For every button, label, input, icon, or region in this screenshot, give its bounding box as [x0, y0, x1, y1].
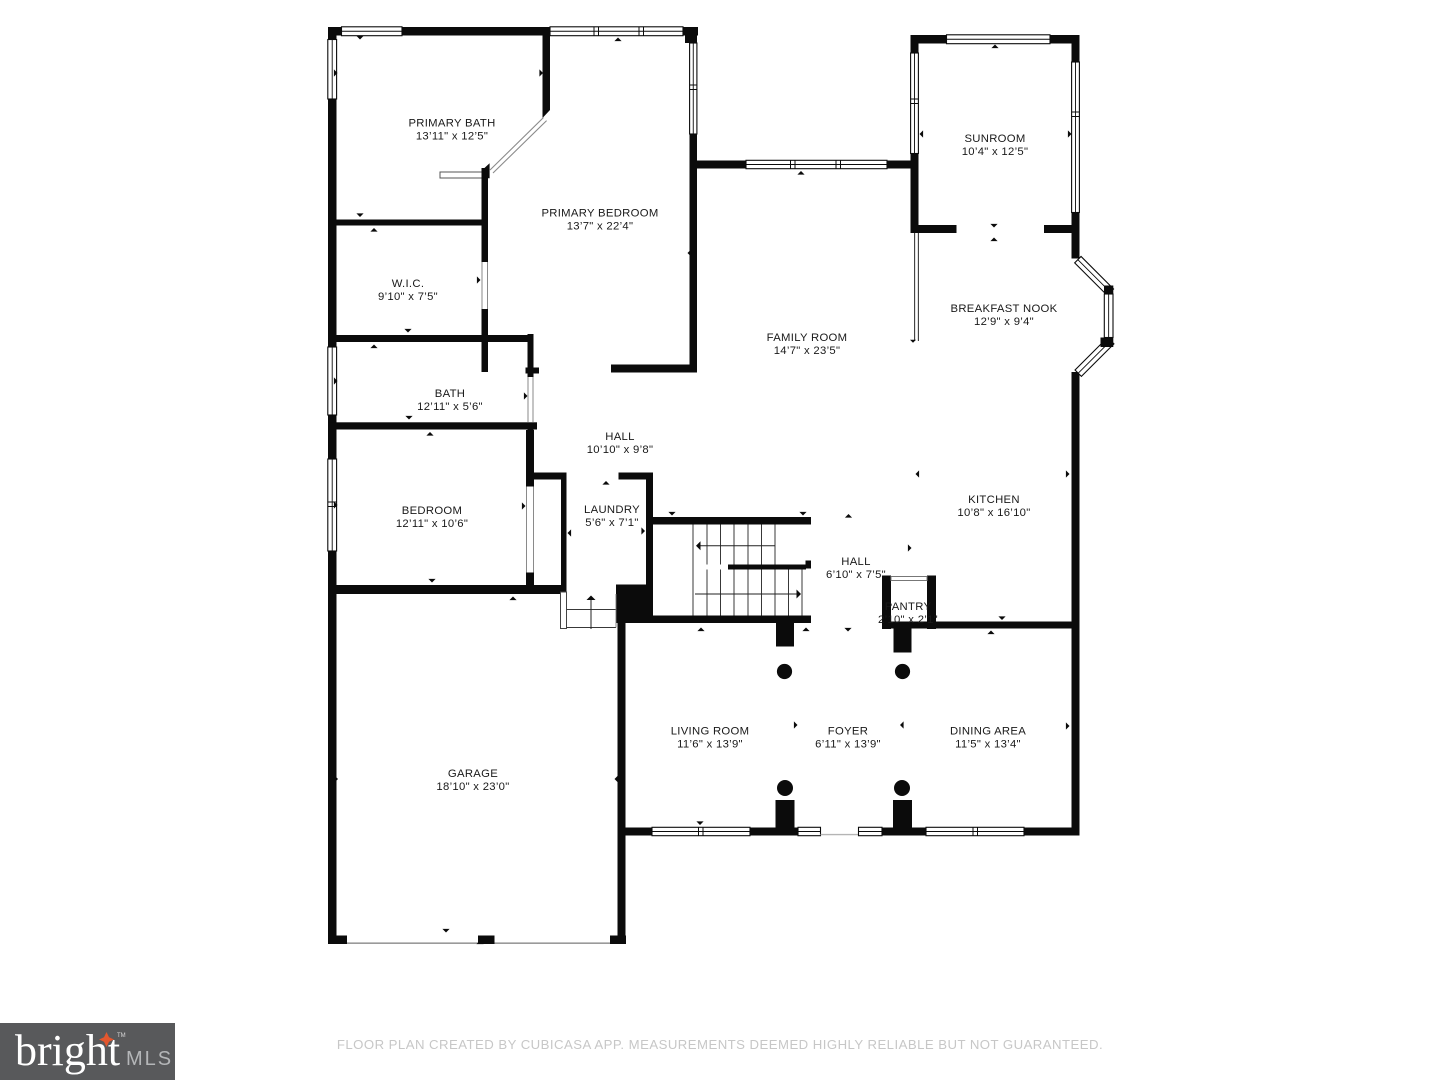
svg-text:6’10" x 7’5": 6’10" x 7’5" — [826, 569, 886, 581]
svg-text:MLS: MLS — [126, 1048, 173, 1070]
svg-text:12’11" x 10’6": 12’11" x 10’6" — [396, 518, 468, 530]
svg-text:TM: TM — [117, 1033, 126, 1039]
svg-text:14’7" x 23’5": 14’7" x 23’5" — [774, 345, 841, 357]
svg-text:HALL: HALL — [841, 556, 870, 568]
svg-text:13’7" x 22’4": 13’7" x 22’4" — [567, 221, 634, 233]
svg-text:BEDROOM: BEDROOM — [402, 505, 462, 517]
svg-text:2’10" x 2’1": 2’10" x 2’1" — [878, 614, 938, 626]
svg-text:18’10" x 23’0": 18’10" x 23’0" — [436, 781, 509, 793]
svg-text:LIVING ROOM: LIVING ROOM — [671, 726, 750, 738]
svg-text:BREAKFAST NOOK: BREAKFAST NOOK — [951, 303, 1058, 315]
svg-text:GARAGE: GARAGE — [448, 768, 498, 780]
svg-text:SUNROOM: SUNROOM — [964, 133, 1025, 145]
svg-text:6’11" x 13’9": 6’11" x 13’9" — [815, 739, 881, 751]
svg-text:FLOOR PLAN CREATED BY CUBICASA: FLOOR PLAN CREATED BY CUBICASA APP. MEAS… — [337, 1037, 1103, 1052]
svg-text:KITCHEN: KITCHEN — [968, 494, 1020, 506]
svg-text:13’11" x 12’5": 13’11" x 12’5" — [416, 131, 488, 143]
svg-text:FAMILY ROOM: FAMILY ROOM — [767, 332, 848, 344]
svg-text:FOYER: FOYER — [828, 726, 868, 738]
svg-text:12’11" x 5’6": 12’11" x 5’6" — [417, 401, 483, 413]
svg-text:HALL: HALL — [605, 431, 634, 443]
svg-text:5’6" x 7’1": 5’6" x 7’1" — [585, 517, 638, 529]
svg-text:LAUNDRY: LAUNDRY — [584, 504, 640, 516]
svg-text:10’8" x 16’10": 10’8" x 16’10" — [957, 507, 1030, 519]
svg-text:PRIMARY BATH: PRIMARY BATH — [408, 118, 495, 130]
svg-text:11’6" x 13’9": 11’6" x 13’9" — [677, 739, 743, 751]
svg-text:10’4" x 12’5": 10’4" x 12’5" — [962, 146, 1029, 158]
svg-text:10’10" x 9’8": 10’10" x 9’8" — [587, 444, 654, 456]
svg-text:PANTRY: PANTRY — [885, 601, 932, 613]
svg-text:11’5" x 13’4": 11’5" x 13’4" — [955, 739, 1021, 751]
svg-text:9’10" x 7’5": 9’10" x 7’5" — [378, 291, 438, 303]
svg-text:BATH: BATH — [435, 388, 466, 400]
svg-text:W.I.C.: W.I.C. — [392, 278, 425, 290]
svg-text:PRIMARY BEDROOM: PRIMARY BEDROOM — [541, 208, 658, 220]
svg-text:12’9" x 9’4": 12’9" x 9’4" — [974, 316, 1034, 328]
svg-text:DINING AREA: DINING AREA — [950, 726, 1026, 738]
svg-text:bright: bright — [15, 1026, 120, 1075]
